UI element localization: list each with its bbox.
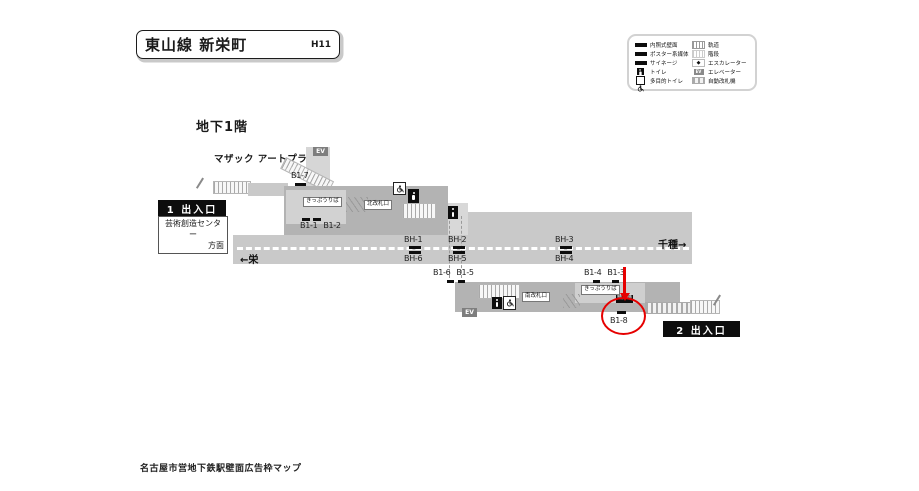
- ticket-gate-icon: [692, 78, 705, 84]
- ad-frame-bar-bh-3: [560, 246, 572, 249]
- ticket-office-north-box: きっぷうりば: [303, 197, 342, 207]
- direction-chikusa: 千種→: [658, 236, 686, 251]
- ad-frame-label-b1-1-b1-2: B1-1B1-2: [300, 221, 341, 230]
- legend-item: 階段: [692, 49, 750, 58]
- ad-frame-bar-b1-4: [593, 280, 600, 283]
- ad-frame-bar-b1-6: [447, 280, 454, 283]
- ad-frame-label-bh-6: BH-6: [404, 254, 422, 263]
- exit2-badge: 2 出入口: [663, 321, 740, 337]
- toilet-icon-south: [492, 297, 502, 309]
- legend-item: 軌道: [692, 40, 750, 49]
- legend-item: ポスター系媒体: [634, 49, 692, 58]
- exit1-badge: 1 出入口: [158, 200, 226, 216]
- title-box: 東山線 新栄町 H11: [136, 30, 340, 59]
- direction-sakae: ←栄: [240, 251, 258, 266]
- map-caption: 名古屋市営地下鉄駅壁面広告枠マップ: [140, 461, 302, 474]
- accessible-toilet-icon-north: [393, 182, 406, 195]
- ad-frame-label-bh-4: BH-4: [555, 254, 573, 263]
- toilet-icon-north-2: [448, 206, 458, 219]
- line-station-title: 東山線 新栄町: [145, 34, 247, 55]
- station-code-badge: H11: [311, 40, 331, 50]
- ad-frame-label-b1-7: B1-7: [291, 171, 308, 180]
- elevator-icon: EV: [692, 69, 705, 75]
- exit1-destination: 芸術創造センター 方面: [158, 216, 228, 254]
- stairs-icon: [692, 51, 705, 57]
- signage-icon: [634, 60, 647, 66]
- lit-wall-sign-icon: [634, 42, 647, 48]
- legend-right-column: 軌道 階段 ◆ エスカレーター EV エレベーター 自動改札機: [692, 40, 750, 85]
- upper-concourse-right: [468, 212, 692, 235]
- accessible-toilet-icon: [634, 78, 647, 84]
- legend-item: ◆ エスカレーター: [692, 58, 750, 67]
- north-platform-stairs: [402, 203, 436, 219]
- station-ad-map: 東山線 新栄町 H11 内照式壁面 ポスター系媒体 サイネージ トイレ: [0, 0, 919, 491]
- exit1-corridor: [248, 183, 288, 196]
- ad-frame-label-bh-5: BH-5: [448, 254, 466, 263]
- ad-frame-label-bh-3: BH-3: [555, 235, 573, 244]
- ad-frame-label-b1-4-b1-3: B1-4B1-3: [584, 268, 625, 277]
- north-gate-box: 北改札口: [364, 200, 392, 210]
- track-icon: [692, 42, 705, 48]
- ad-frame-bar-bh-2: [453, 246, 465, 249]
- poster-media-icon: [634, 51, 647, 57]
- accessible-toilet-icon-south: [503, 296, 516, 310]
- legend-item: トイレ: [634, 67, 692, 76]
- south-gate-box: 南改札口: [522, 292, 550, 302]
- legend-item: サイネージ: [634, 58, 692, 67]
- ad-frame-bar-b1-3: [612, 280, 619, 283]
- ticket-office-south-box: きっぷうりば: [581, 285, 620, 295]
- ad-frame-label-b1-6-b1-5: B1-6B1-5: [433, 268, 474, 277]
- highlight-circle-b1-8: [601, 297, 646, 335]
- ad-frame-bar-b1-7: [295, 183, 306, 186]
- legend-item: 内照式壁面: [634, 40, 692, 49]
- highlight-arrow-shaft: [623, 267, 626, 294]
- toilet-icon: [634, 69, 647, 75]
- ad-frame-label-bh-2: BH-2: [448, 235, 466, 244]
- toilet-icon-north-1: [408, 189, 419, 203]
- legend-item: 多目的トイレ: [634, 76, 692, 85]
- legend: 内照式壁面 ポスター系媒体 サイネージ トイレ: [627, 34, 757, 91]
- ad-frame-bar-bh-1: [409, 246, 421, 249]
- ad-frame-bar-b1-5: [458, 280, 465, 283]
- south-gate-hatch: [563, 294, 580, 308]
- south-ticket-gate-row: [645, 302, 692, 314]
- legend-item: EV エレベーター: [692, 67, 750, 76]
- legend-left-column: 内照式壁面 ポスター系媒体 サイネージ トイレ: [634, 40, 692, 85]
- escalator-icon: ◆: [692, 60, 705, 66]
- exit1-stair-end-mark: [196, 178, 204, 189]
- elevator-badge-south: EV: [462, 308, 477, 317]
- legend-item: 自動改札機: [692, 76, 750, 85]
- ad-frame-label-bh-1: BH-1: [404, 235, 422, 244]
- floor-label: 地下1階: [196, 116, 248, 135]
- elevator-badge-north: EV: [313, 147, 328, 156]
- exit1-stairs: [213, 181, 251, 194]
